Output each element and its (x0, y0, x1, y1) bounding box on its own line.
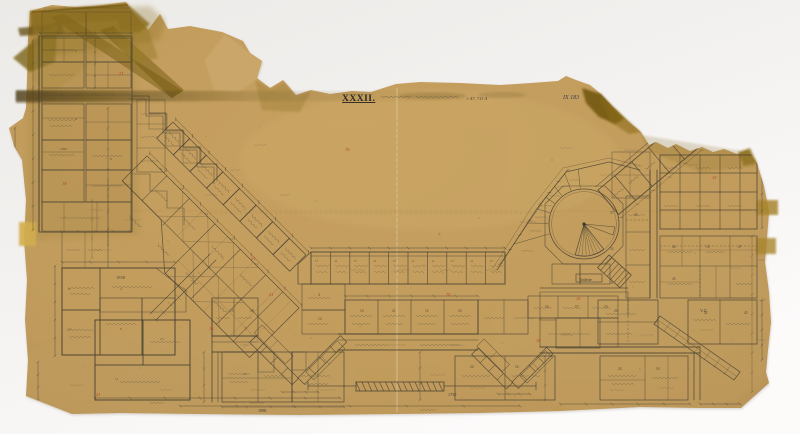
svg-text:23: 23 (458, 309, 462, 313)
svg-text:31: 31 (610, 281, 614, 285)
svg-text:57: 57 (575, 305, 579, 309)
svg-text:1888: 1888 (258, 408, 266, 413)
svg-text:17: 17 (354, 259, 358, 263)
svg-text:11: 11 (373, 259, 376, 263)
svg-text:21: 21 (392, 309, 396, 313)
svg-text:15: 15 (230, 309, 234, 313)
svg-text:12: 12 (393, 259, 397, 263)
svg-text:9: 9 (160, 167, 162, 171)
svg-text:17: 17 (451, 259, 455, 263)
svg-text:42: 42 (704, 311, 708, 315)
svg-text:18: 18 (706, 245, 710, 249)
svg-text:15: 15 (576, 296, 581, 301)
svg-text:17: 17 (180, 187, 184, 191)
svg-text:44: 44 (672, 245, 676, 249)
svg-text:15: 15 (209, 326, 214, 331)
svg-text:13: 13 (160, 337, 164, 341)
svg-text:11: 11 (115, 377, 119, 381)
svg-text:45: 45 (672, 277, 676, 281)
svg-text:14: 14 (360, 309, 364, 313)
svg-text:7.: 7. (244, 326, 247, 331)
svg-text:11: 11 (431, 259, 434, 263)
svg-text:17: 17 (230, 237, 234, 241)
svg-text:6: 6 (68, 287, 70, 291)
svg-text:Toilette: Toilette (579, 277, 592, 282)
svg-text:18: 18 (250, 309, 254, 313)
svg-text:70: 70 (446, 292, 451, 297)
svg-text:11: 11 (205, 212, 209, 216)
svg-text:7.: 7. (438, 232, 441, 237)
svg-text:21: 21 (96, 392, 101, 397)
svg-text:8: 8 (110, 157, 112, 161)
svg-text:24: 24 (470, 365, 474, 369)
svg-text:XXXII.: XXXII. (342, 94, 375, 104)
svg-text:4: 4 (318, 293, 320, 297)
svg-text:17: 17 (315, 259, 319, 263)
svg-text:11: 11 (315, 372, 319, 376)
svg-text:18: 18 (62, 181, 67, 186)
svg-text:2: 2 (75, 49, 77, 53)
svg-text:16: 16 (604, 305, 608, 309)
svg-text:11: 11 (470, 259, 473, 263)
svg-text:21: 21 (119, 71, 124, 76)
svg-text:16: 16 (545, 305, 549, 309)
svg-text:+ 47. 711 A: + 47. 711 A (466, 96, 487, 101)
svg-text:4: 4 (120, 287, 122, 291)
svg-text:21: 21 (269, 292, 274, 297)
svg-text:37: 37 (610, 211, 614, 215)
svg-text:16: 16 (656, 367, 660, 371)
svg-text:12: 12 (425, 309, 429, 313)
svg-text:1858: 1858 (116, 275, 126, 280)
svg-text:14: 14 (318, 317, 322, 321)
svg-text:11: 11 (334, 259, 337, 263)
svg-text:4: 4 (75, 117, 77, 121)
svg-text:21: 21 (251, 256, 256, 261)
svg-text:18: 18 (536, 338, 541, 343)
svg-text:13: 13 (243, 372, 247, 376)
svg-text:IX 183: IX 183 (562, 95, 579, 101)
svg-text:47: 47 (738, 245, 742, 249)
svg-text:43: 43 (634, 213, 638, 217)
svg-text:26: 26 (614, 309, 618, 313)
svg-text:16: 16 (515, 365, 519, 369)
svg-text:17: 17 (490, 259, 494, 263)
svg-text:34: 34 (610, 247, 614, 251)
svg-text:45: 45 (744, 311, 748, 315)
svg-text:24: 24 (618, 367, 622, 371)
svg-text:1850: 1850 (60, 147, 67, 151)
svg-text:11: 11 (255, 262, 259, 266)
svg-text:6: 6 (120, 327, 122, 331)
svg-text:70: 70 (345, 147, 350, 152)
svg-text:11: 11 (68, 327, 72, 331)
svg-text:15: 15 (712, 175, 717, 180)
